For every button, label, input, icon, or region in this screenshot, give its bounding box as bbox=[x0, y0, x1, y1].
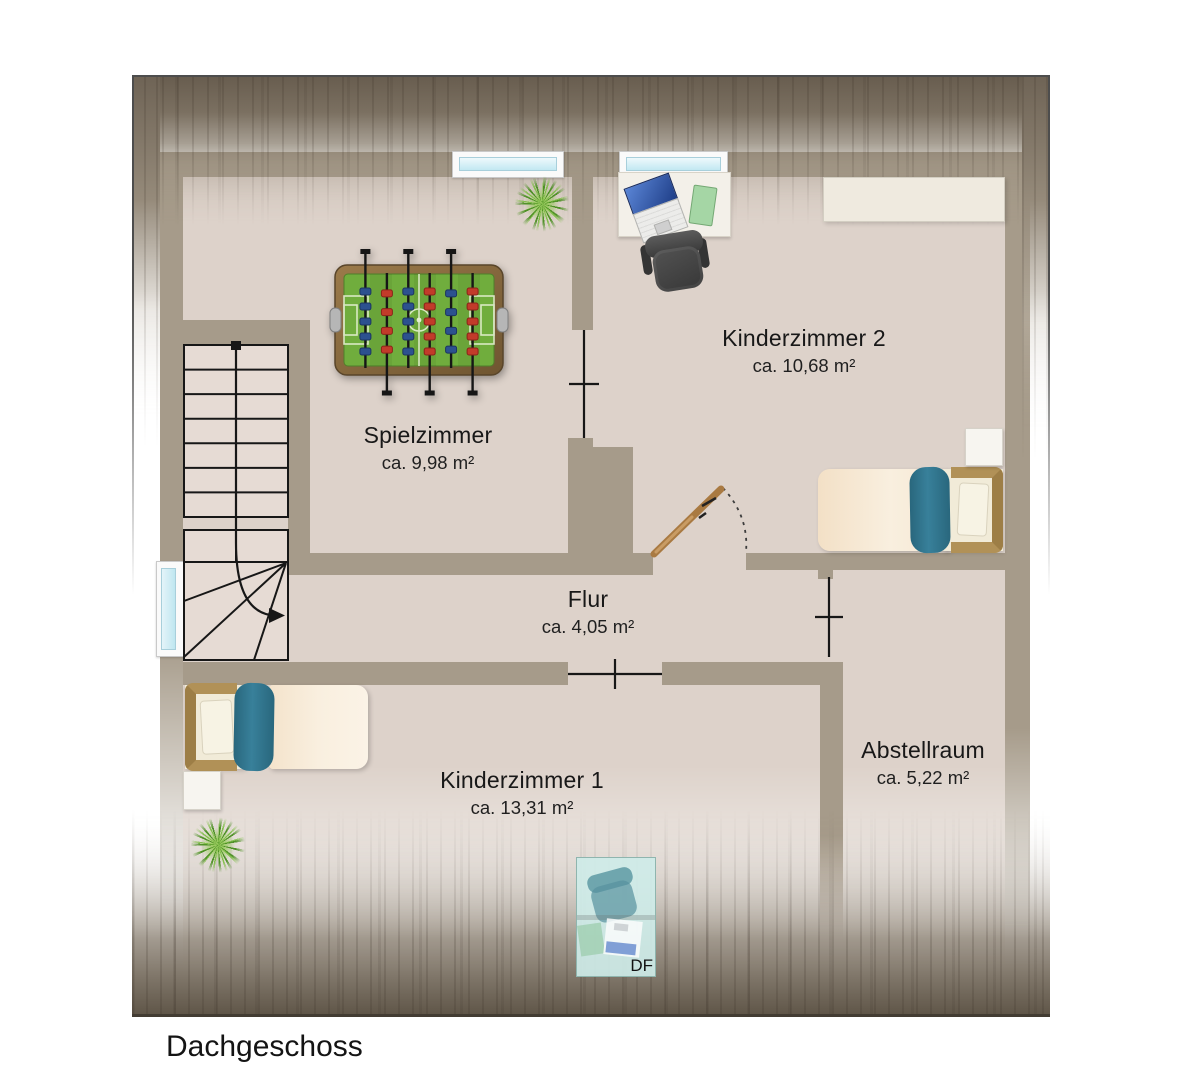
room-area: ca. 13,31 m² bbox=[440, 797, 604, 819]
wall-kinderzimmer2-bottom bbox=[746, 553, 1030, 570]
plan-border-right bbox=[1048, 75, 1050, 595]
ghost-papers bbox=[603, 918, 643, 958]
plan-border-bottom bbox=[132, 1014, 1050, 1017]
floorplan-page: DF Spielzimmer ca. 9,98 m² Kinderzimmer … bbox=[0, 0, 1200, 1074]
ghost-paper-strip bbox=[605, 941, 636, 955]
wall-kinderzimmer1-top-left bbox=[183, 662, 568, 685]
foosball-table bbox=[329, 247, 509, 399]
room-area: ca. 5,22 m² bbox=[861, 767, 985, 789]
window-glass bbox=[626, 157, 721, 171]
bed-accent-band bbox=[233, 683, 275, 772]
room-label-spielzimmer: Spielzimmer ca. 9,98 m² bbox=[364, 422, 493, 474]
wall-outer-top bbox=[160, 152, 1030, 177]
desk-chair bbox=[642, 233, 714, 295]
window-flur-stairs bbox=[156, 561, 184, 657]
room-label-abstellraum: Abstellraum ca. 5,22 m² bbox=[861, 737, 985, 789]
window-glass bbox=[459, 157, 557, 171]
plant bbox=[515, 176, 569, 232]
floor-title: Dachgeschoss bbox=[166, 1030, 363, 1064]
bed-pillow bbox=[957, 482, 990, 536]
nightstand-kinderzimmer2 bbox=[965, 428, 1003, 466]
roof-window-df: DF bbox=[576, 857, 656, 977]
roof-window-label: DF bbox=[630, 957, 653, 976]
bed-kinderzimmer1 bbox=[185, 683, 368, 771]
room-name: Flur bbox=[542, 586, 635, 613]
room-area: ca. 4,05 m² bbox=[542, 616, 635, 638]
bed-kinderzimmer2 bbox=[818, 467, 1003, 553]
side-handle-right bbox=[497, 308, 508, 332]
wall-spielzimmer-kinderzimmer2 bbox=[572, 177, 593, 330]
nightstand-kinderzimmer1 bbox=[183, 771, 221, 810]
window-glass bbox=[161, 568, 176, 650]
room-label-kinderzimmer2: Kinderzimmer 2 ca. 10,68 m² bbox=[722, 325, 886, 377]
chair-seat bbox=[651, 245, 705, 294]
room-label-kinderzimmer1: Kinderzimmer 1 ca. 13,31 m² bbox=[440, 767, 604, 819]
wall-abstellraum-left bbox=[820, 662, 843, 952]
plan-border-top bbox=[132, 75, 1050, 77]
wall-kinderzimmer1-top-right bbox=[662, 662, 843, 685]
bed-pillow bbox=[200, 699, 235, 755]
floor-plan: DF Spielzimmer ca. 9,98 m² Kinderzimmer … bbox=[132, 75, 1050, 1017]
room-area: ca. 10,68 m² bbox=[722, 355, 886, 377]
wall-flur-top bbox=[288, 553, 653, 575]
bed-accent-band bbox=[909, 467, 950, 554]
wall-stair-right bbox=[288, 320, 310, 575]
room-name: Spielzimmer bbox=[364, 422, 493, 449]
room-name: Abstellraum bbox=[861, 737, 985, 764]
wall-outer-right bbox=[1005, 152, 1030, 952]
bed-blanket bbox=[269, 685, 368, 769]
room-area: ca. 9,98 m² bbox=[364, 452, 493, 474]
ghost-folder bbox=[577, 922, 605, 956]
room-label-flur: Flur ca. 4,05 m² bbox=[542, 586, 635, 638]
wall-pillar-wide bbox=[568, 447, 633, 553]
plant bbox=[191, 817, 245, 873]
room-name: Kinderzimmer 1 bbox=[440, 767, 604, 794]
window-spielzimmer bbox=[452, 151, 564, 178]
wall-stub-abstellraum bbox=[818, 567, 833, 579]
sideboard bbox=[823, 177, 1005, 222]
plan-border-left bbox=[132, 75, 134, 595]
side-handle-left bbox=[330, 308, 341, 332]
wall-outer-left bbox=[160, 152, 183, 942]
ghost-paper-tab bbox=[614, 923, 629, 931]
room-name: Kinderzimmer 2 bbox=[722, 325, 886, 352]
